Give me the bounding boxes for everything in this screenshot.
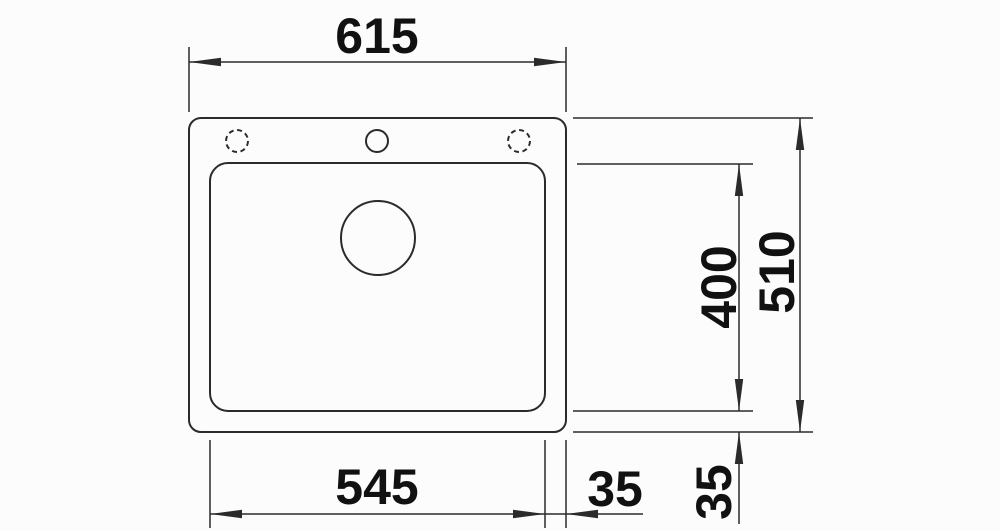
- sink-dimension-drawing: 615 545 35 400: [0, 0, 1000, 531]
- dimension-edge-offset-right: 35: [545, 440, 643, 528]
- dimension-label-bowl-depth: 400: [691, 245, 747, 328]
- arrowhead-inward-up: [735, 432, 743, 464]
- arrowhead-right: [534, 58, 566, 66]
- dimension-bowl-width: 545: [210, 440, 545, 528]
- tap-hole-left-dashed: [226, 130, 248, 152]
- dimension-label-overall-depth: 510: [749, 230, 805, 313]
- dimension-label-edge-offset-bottom: 35: [686, 464, 742, 520]
- arrowhead-up: [796, 118, 804, 150]
- drain-hole-outline: [341, 201, 415, 275]
- technical-drawing-canvas: 615 545 35 400: [0, 0, 1000, 531]
- dimension-bowl-depth: 400: [573, 164, 753, 411]
- dimension-label-bowl-width: 545: [335, 459, 418, 515]
- dimension-edge-offset-bottom: 35: [686, 432, 743, 524]
- dimension-label-overall-width: 615: [335, 8, 418, 64]
- arrowhead-right: [513, 510, 545, 518]
- tap-hole-right-dashed: [508, 130, 530, 152]
- tap-hole-center: [366, 130, 388, 152]
- arrowhead-left: [189, 58, 221, 66]
- arrowhead-up: [735, 164, 743, 196]
- dimension-overall-width: 615: [189, 8, 566, 112]
- arrowhead-down: [796, 400, 804, 432]
- sink-outlines: [189, 118, 566, 432]
- dimension-label-edge-offset-right: 35: [587, 461, 643, 517]
- arrowhead-left: [210, 510, 242, 518]
- arrowhead-down: [735, 379, 743, 411]
